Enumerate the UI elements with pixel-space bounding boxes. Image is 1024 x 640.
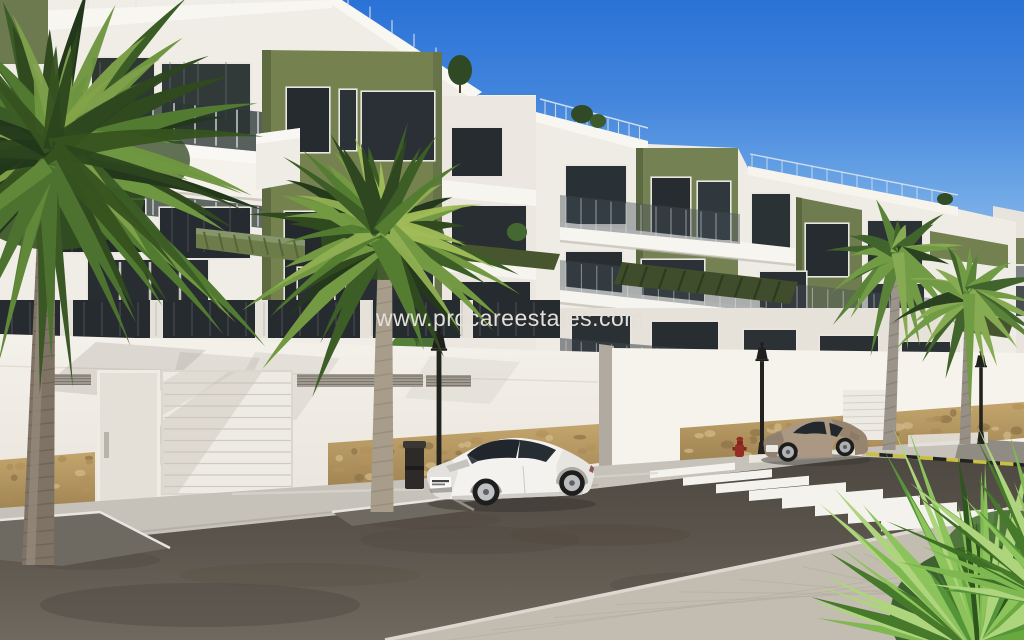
svg-text:www.procareestates.com: www.procareestates.com bbox=[375, 305, 644, 331]
